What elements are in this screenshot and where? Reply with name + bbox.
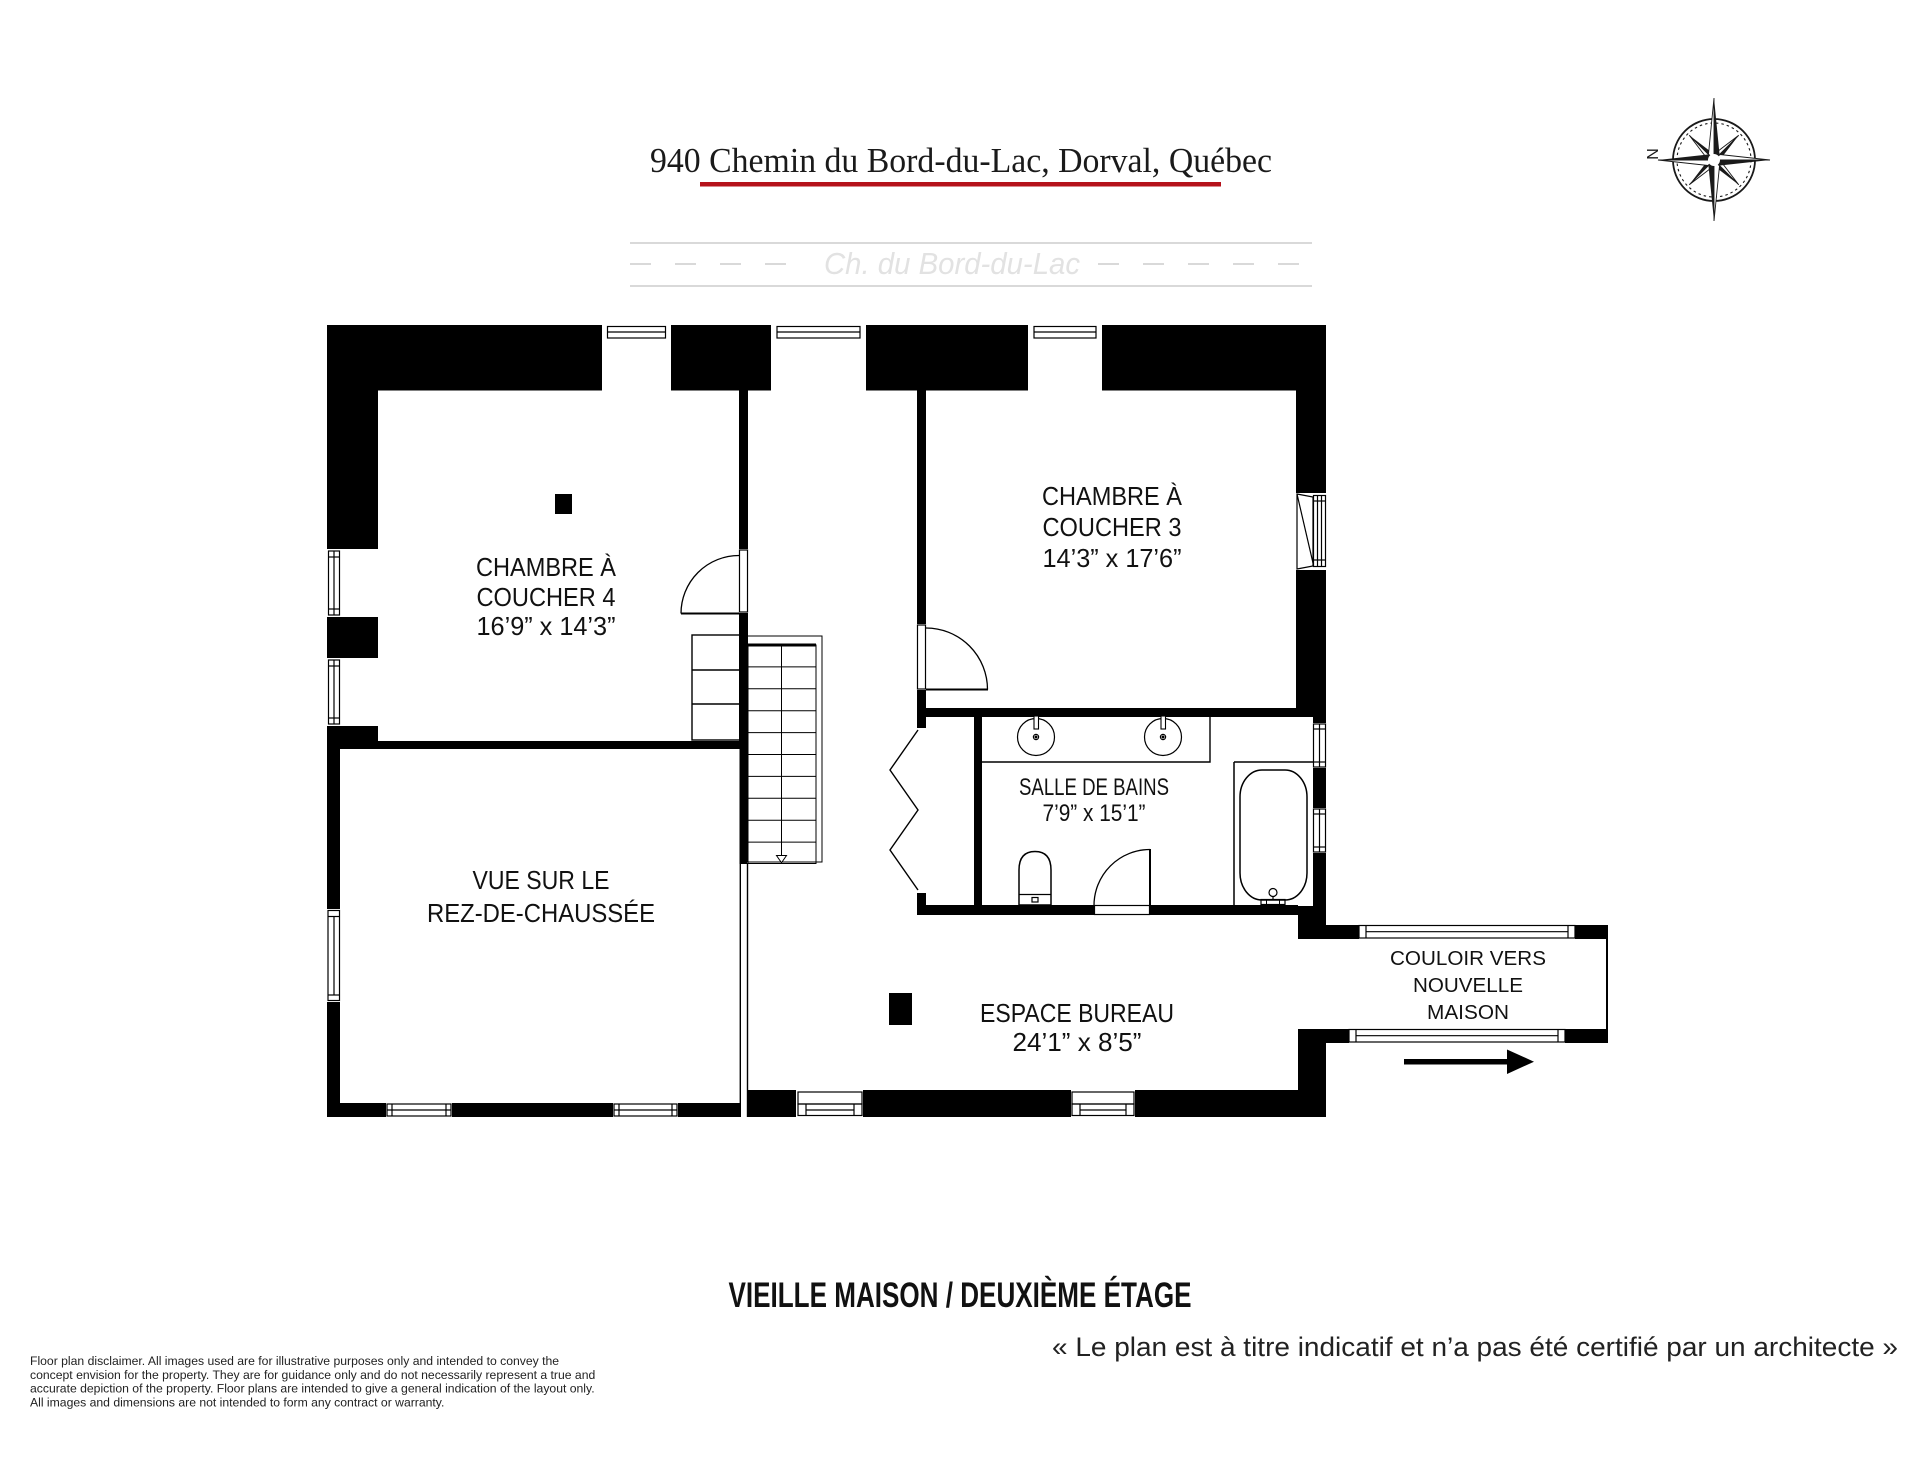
svg-text:NOUVELLE: NOUVELLE [1413, 975, 1523, 997]
svg-text:14’3” x 17’6”: 14’3” x 17’6” [1043, 543, 1182, 573]
svg-text:« Le plan est à titre indicati: « Le plan est à titre indicatif et n’a p… [1052, 1332, 1898, 1362]
svg-text:COUCHER 3: COUCHER 3 [1043, 512, 1182, 542]
svg-text:940 Chemin du Bord-du-Lac, Dor: 940 Chemin du Bord-du-Lac, Dorval, Québe… [650, 141, 1272, 180]
svg-text:VUE SUR LE: VUE SUR LE [473, 865, 610, 895]
svg-text:VIEILLE MAISON / DEUXIÈME ÉTAG: VIEILLE MAISON / DEUXIÈME ÉTAGE [729, 1275, 1192, 1315]
svg-text:16’9” x 14’3”: 16’9” x 14’3” [477, 611, 616, 641]
svg-text:CHAMBRE À: CHAMBRE À [1042, 481, 1183, 511]
svg-text:Floor plan disclaimer. All ima: Floor plan disclaimer. All images used a… [30, 1354, 559, 1368]
svg-text:7’9” x 15’1”: 7’9” x 15’1” [1043, 800, 1146, 827]
svg-text:Ch. du Bord-du-Lac: Ch. du Bord-du-Lac [824, 246, 1080, 281]
svg-text:SALLE DE BAINS: SALLE DE BAINS [1019, 774, 1169, 801]
svg-text:N: N [1645, 148, 1662, 160]
svg-text:COULOIR VERS: COULOIR VERS [1390, 948, 1546, 970]
svg-text:accurate depiction of the prop: accurate depiction of the property. Floo… [30, 1382, 595, 1396]
svg-text:concept envision for the prope: concept envision for the property. They … [30, 1368, 595, 1382]
svg-text:All images and dimensions are: All images and dimensions are not intend… [30, 1395, 444, 1409]
svg-text:COUCHER 4: COUCHER 4 [477, 582, 616, 612]
svg-text:MAISON: MAISON [1427, 1002, 1509, 1024]
svg-text:ESPACE BUREAU: ESPACE BUREAU [980, 998, 1174, 1028]
svg-text:24’1” x 8’5”: 24’1” x 8’5” [1013, 1027, 1142, 1057]
svg-text:CHAMBRE À: CHAMBRE À [476, 552, 617, 582]
svg-text:REZ-DE-CHAUSSÉE: REZ-DE-CHAUSSÉE [427, 898, 655, 928]
